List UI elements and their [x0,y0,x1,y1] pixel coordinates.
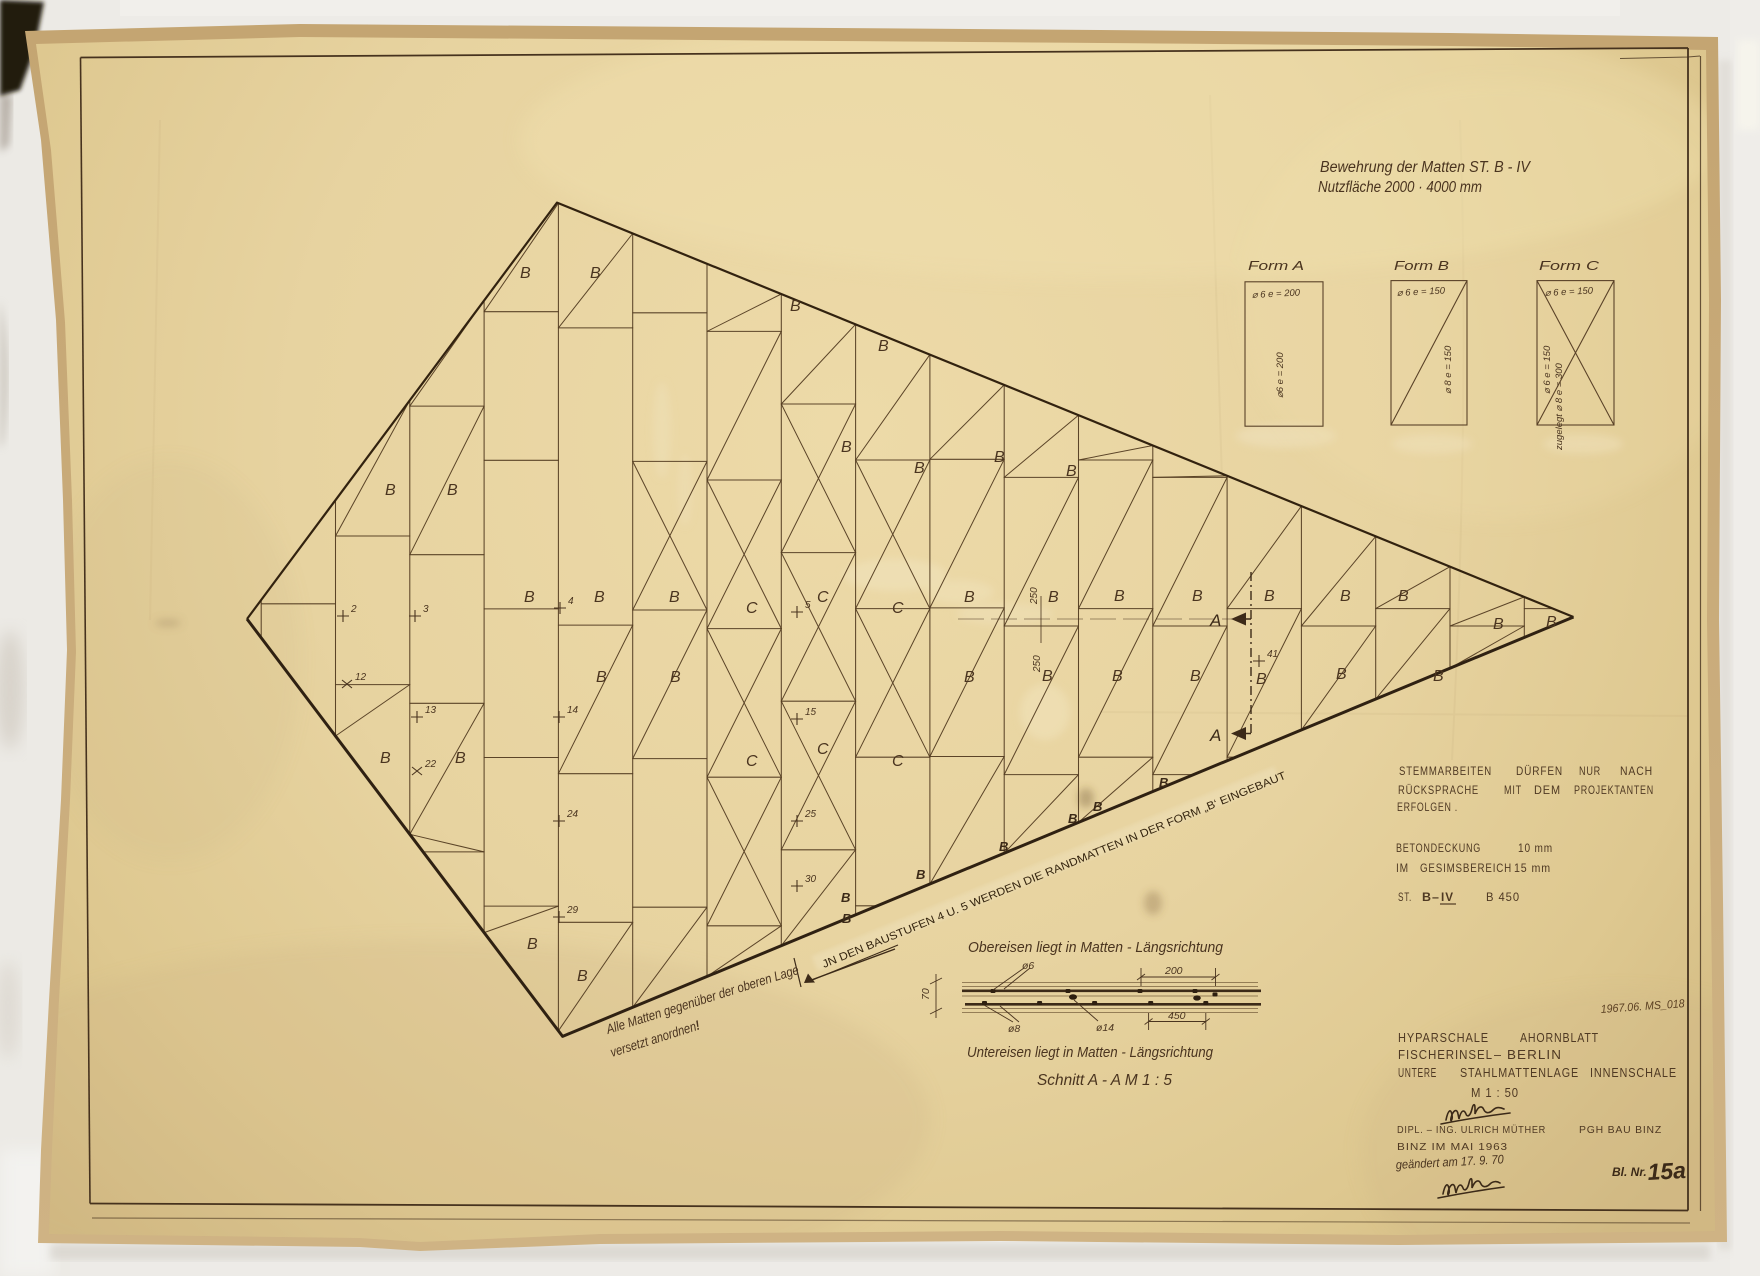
svg-text:B: B [790,298,801,315]
svg-text:DÜRFEN: DÜRFEN [1516,764,1563,778]
svg-text:GESIMSBEREICH: GESIMSBEREICH [1420,861,1512,875]
svg-text:24: 24 [566,809,579,820]
svg-text:BINZ IM MAI 1963: BINZ IM MAI 1963 [1397,1141,1508,1153]
svg-text:–: – [1494,1048,1502,1062]
svg-text:DEM: DEM [1534,783,1561,797]
svg-text:250: 250 [1029,587,1040,605]
svg-text:25: 25 [804,809,817,820]
svg-text:B 450: B 450 [1486,890,1520,904]
svg-text:B: B [914,460,925,477]
svg-text:HYPARSCHALE: HYPARSCHALE [1398,1031,1489,1045]
svg-text:B: B [1190,668,1201,685]
svg-text:C: C [892,753,904,770]
svg-text:ø8: ø8 [1008,1023,1020,1035]
svg-text:⌀ 8 e = 150: ⌀ 8 e = 150 [1443,345,1454,394]
svg-text:3: 3 [423,604,429,615]
svg-text:ø6: ø6 [1022,960,1034,972]
svg-text:⌀6 e = 200: ⌀6 e = 200 [1275,352,1286,398]
svg-text:4: 4 [568,596,574,607]
svg-text:12: 12 [355,672,367,683]
svg-text:13: 13 [425,705,437,716]
svg-text:IV: IV [1441,890,1454,904]
svg-text:C: C [817,741,829,758]
svg-text:B: B [964,669,975,686]
svg-text:NACH: NACH [1620,764,1653,778]
svg-text:B: B [1433,668,1444,685]
svg-text:B: B [577,968,588,985]
svg-text:Form A: Form A [1248,258,1304,273]
svg-text:22: 22 [424,759,437,770]
svg-text:RÜCKSPRACHE: RÜCKSPRACHE [1398,783,1479,797]
svg-text:zugelegt ⌀ 8 e = 300: zugelegt ⌀ 8 e = 300 [1554,362,1565,451]
svg-text:B: B [520,265,531,282]
svg-text:B: B [1093,799,1102,814]
svg-text:Bewehrung der Matten ST. B: Bewehrung der Matten ST. B - IV [1320,159,1532,176]
svg-text:NUR: NUR [1579,764,1601,778]
svg-text:C: C [746,600,758,617]
svg-text:15a: 15a [1647,1157,1687,1185]
svg-text:B: B [1048,589,1059,606]
svg-text:B: B [670,669,681,686]
svg-text:2: 2 [350,604,357,615]
svg-text:ø14: ø14 [1096,1022,1114,1034]
svg-text:BERLIN: BERLIN [1507,1048,1562,1062]
svg-text:INNENSCHALE: INNENSCHALE [1590,1066,1677,1080]
svg-text:70: 70 [920,988,932,1000]
svg-text:B: B [1546,614,1557,631]
svg-text:B: B [1068,811,1077,826]
svg-text:B: B [447,482,458,499]
svg-text:Nutzfläche 2000 · 4000 mm: Nutzfläche 2000 · 4000 mm [1318,179,1482,196]
svg-text:450: 450 [1168,1010,1186,1022]
svg-text:AHORNBLATT: AHORNBLATT [1520,1031,1599,1045]
svg-text:A: A [1209,726,1221,745]
svg-text:Obereisen liegt in Matten: Obereisen liegt in Matten - Längsrichtun… [968,939,1224,956]
svg-text:BETONDECKUNG: BETONDECKUNG [1396,841,1481,855]
svg-text:B: B [1192,588,1203,605]
svg-text:PGH BAU BINZ: PGH BAU BINZ [1579,1124,1662,1136]
svg-text:15: 15 [805,707,817,718]
svg-text:B: B [916,867,925,882]
svg-text:B: B [524,589,535,606]
svg-text:B: B [590,265,601,282]
svg-text:B: B [999,839,1008,854]
svg-text:30: 30 [805,874,817,885]
svg-text:Schnitt A - A M 1 : 5: Schnitt A - A M 1 : 5 [1037,1072,1172,1089]
svg-text:B: B [527,936,538,953]
svg-text:Untereisen liegt in Matten: Untereisen liegt in Matten - Längsrichtu… [967,1044,1214,1061]
svg-text:FISCHERINSEL: FISCHERINSEL [1398,1048,1493,1062]
svg-text:ERFOLGEN .: ERFOLGEN . [1397,800,1458,814]
svg-text:250: 250 [1032,655,1043,673]
svg-text:B: B [596,669,607,686]
svg-text:200: 200 [1164,965,1183,977]
svg-text:A: A [1209,611,1221,630]
svg-text:IM: IM [1396,861,1409,875]
svg-text:15 mm: 15 mm [1514,861,1551,875]
svg-text:Form C: Form C [1539,258,1600,273]
svg-text:UNTERE: UNTERE [1398,1066,1437,1080]
svg-text:10 mm: 10 mm [1518,841,1553,855]
svg-text:41: 41 [1267,649,1278,660]
svg-text:⌀ 6 e = 150: ⌀ 6 e = 150 [1542,345,1553,394]
svg-text:B: B [1066,463,1077,480]
svg-text:B: B [964,589,975,606]
svg-text:C: C [892,600,904,617]
svg-text:PROJEKTANTEN: PROJEKTANTEN [1574,783,1654,797]
svg-text:MIT: MIT [1504,783,1522,797]
svg-text:B: B [842,911,851,926]
svg-text:B: B [1493,616,1504,633]
svg-text:B: B [841,439,852,456]
svg-text:C: C [746,753,758,770]
svg-text:B: B [878,338,889,355]
svg-text:14: 14 [567,705,579,716]
svg-text:B: B [1042,668,1053,685]
svg-text:B: B [1114,588,1125,605]
svg-text:B: B [1398,588,1409,605]
svg-text:STEMMARBEITEN: STEMMARBEITEN [1399,764,1492,778]
svg-text:B: B [1159,775,1168,790]
svg-text:B: B [669,589,680,606]
svg-text:M 1 : 50: M 1 : 50 [1471,1086,1519,1100]
svg-text:29: 29 [566,905,579,916]
svg-text:B: B [1340,588,1351,605]
svg-text:B–: B– [1422,890,1440,904]
svg-text:B: B [385,482,396,499]
svg-text:B: B [1264,588,1275,605]
svg-text:B: B [841,890,850,905]
svg-text:B: B [380,750,391,767]
svg-text:B: B [1256,671,1267,688]
svg-text:5: 5 [805,600,811,611]
svg-text:B: B [455,750,466,767]
svg-text:B: B [1112,668,1123,685]
svg-text:Bl. Nr.: Bl. Nr. [1612,1165,1647,1179]
svg-text:Form B: Form B [1394,258,1449,273]
svg-text:DIPL. – ING. ULRICH MÜTHER: DIPL. – ING. ULRICH MÜTHER [1397,1124,1546,1136]
svg-text:B: B [594,589,605,606]
svg-text:ST.: ST. [1398,890,1412,904]
svg-text:C: C [817,589,829,606]
svg-text:B: B [1336,666,1347,683]
svg-text:B: B [994,449,1005,466]
svg-text:STAHLMATTENLAGE: STAHLMATTENLAGE [1460,1066,1579,1080]
